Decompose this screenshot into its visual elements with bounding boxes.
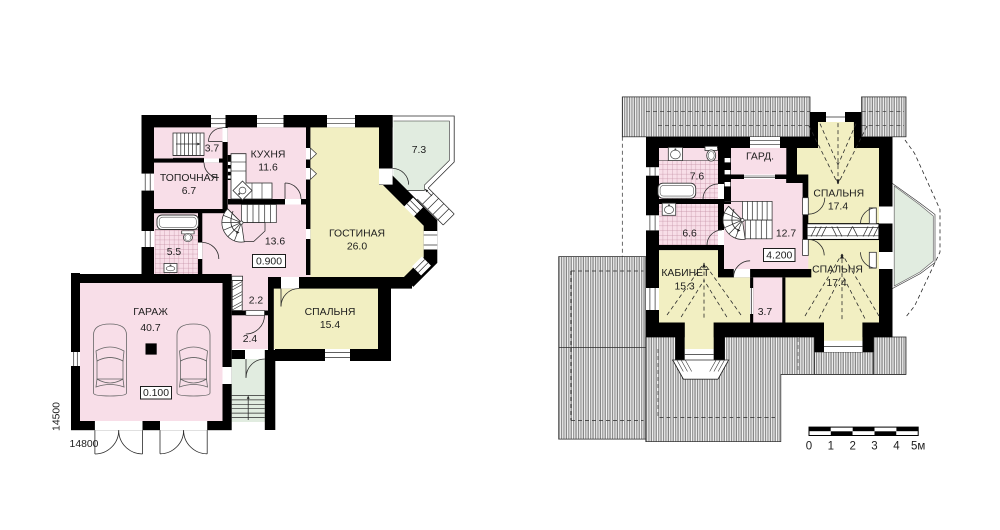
svg-text:12.7: 12.7 <box>776 229 796 240</box>
svg-text:17.4: 17.4 <box>826 278 846 289</box>
svg-text:ТОПОЧНАЯ: ТОПОЧНАЯ <box>160 173 218 184</box>
svg-text:4: 4 <box>893 441 900 453</box>
svg-text:0: 0 <box>806 441 812 453</box>
svg-text:КУХНЯ: КУХНЯ <box>251 150 286 161</box>
svg-text:13.6: 13.6 <box>265 237 285 248</box>
svg-text:СПАЛЬНЯ: СПАЛЬНЯ <box>305 307 356 318</box>
svg-text:3.7: 3.7 <box>205 144 220 155</box>
svg-text:7.6: 7.6 <box>690 171 705 182</box>
svg-text:3: 3 <box>871 441 877 453</box>
svg-text:КАБИНЕТ: КАБИНЕТ <box>661 268 710 279</box>
svg-text:17.4: 17.4 <box>828 202 848 213</box>
svg-text:40.7: 40.7 <box>140 323 160 334</box>
svg-text:4.200: 4.200 <box>766 251 792 262</box>
svg-text:ГАРД.: ГАРД. <box>746 151 774 162</box>
svg-text:26.0: 26.0 <box>347 242 367 253</box>
svg-text:2.4: 2.4 <box>243 334 258 345</box>
svg-text:6.6: 6.6 <box>682 229 697 240</box>
svg-text:1: 1 <box>828 441 834 453</box>
svg-text:СПАЛЬНЯ: СПАЛЬНЯ <box>812 265 863 276</box>
svg-text:ГОСТИНАЯ: ГОСТИНАЯ <box>329 229 385 240</box>
svg-text:6.7: 6.7 <box>182 186 197 197</box>
svg-text:15.4: 15.4 <box>320 320 340 331</box>
svg-text:3.7: 3.7 <box>758 307 773 318</box>
svg-text:14800: 14800 <box>70 439 99 450</box>
svg-text:5.5: 5.5 <box>167 247 182 258</box>
svg-text:ГАРАЖ: ГАРАЖ <box>133 307 168 318</box>
svg-text:11.6: 11.6 <box>258 163 278 174</box>
svg-text:2: 2 <box>849 441 855 453</box>
svg-text:0.900: 0.900 <box>256 257 282 268</box>
svg-text:14500: 14500 <box>52 402 63 431</box>
svg-text:2.2: 2.2 <box>249 296 264 307</box>
svg-text:7.3: 7.3 <box>412 145 427 156</box>
svg-text:0.100: 0.100 <box>143 388 169 399</box>
svg-text:СПАЛЬНЯ: СПАЛЬНЯ <box>813 189 864 200</box>
svg-text:15.3: 15.3 <box>674 281 694 292</box>
svg-text:5м: 5м <box>911 441 925 453</box>
